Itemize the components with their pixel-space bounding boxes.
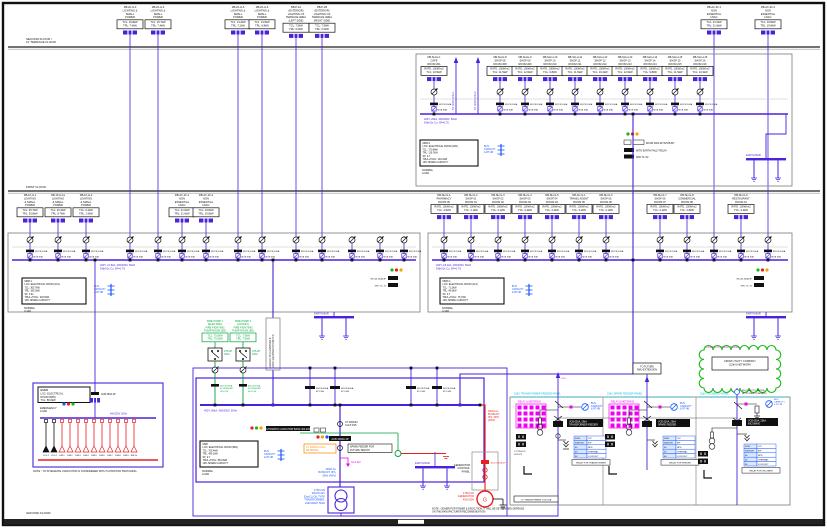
- svg-text:SHOP 15: SHOP 15: [670, 58, 681, 62]
- svg-text:MCB 63A: MCB 63A: [703, 108, 713, 111]
- svg-text:ROOM 05: ROOM 05: [573, 200, 585, 204]
- svg-text:RATE: 100W/m2: RATE: 100W/m2: [569, 205, 589, 209]
- svg-text:& SMALL: & SMALL: [25, 200, 37, 204]
- msb-upfeeder: MCCB 250A4P LSIG: [432, 367, 456, 407]
- mdb1-info-box: MDB-1LOC: ELECTRICAL ROOM (101)TCL: 305.…: [22, 278, 86, 313]
- msb-upfeeder: MCCB 400A4P LSIG: [305, 367, 329, 407]
- bus-note-1fl: 400Y, 21.5kA, 400/230V, 50Hz63kA/1s Cu, …: [100, 263, 136, 270]
- svg-text:DB-SH-H-9: DB-SH-H-9: [518, 55, 532, 59]
- svg-text:MCCB 100A: MCCB 100A: [243, 250, 256, 253]
- mdb2-info-box: MDB-2LOC: ELECTRICAL ROOM (206)TCL: 170.…: [420, 140, 478, 175]
- circuit-tap: DB-SH-G-7SHOP 06ROOM 07RATE: 100W/m2TCL:…: [647, 193, 678, 261]
- svg-text:MCB 63A: MCB 63A: [553, 108, 563, 111]
- svg-text:TCL: 3.4kW: TCL: 3.4kW: [734, 208, 748, 212]
- svg-text:THERMAL: THERMAL: [588, 450, 599, 453]
- svg-text:DB-1F-H-1a: DB-1F-H-1a: [51, 193, 66, 197]
- svg-text:MCB 63A: MCB 63A: [653, 108, 663, 111]
- earth-bar-1fr: [746, 316, 786, 339]
- svg-text:TCL: 11.5kW: TCL: 11.5kW: [493, 70, 508, 74]
- svg-text:400Y, 65kA, 400/230V, 50Hz: 400Y, 65kA, 400/230V, 50Hz: [204, 409, 238, 413]
- svg-text:SHOP 09: SHOP 09: [520, 58, 531, 62]
- circuit-tap: MCCB 100AMCB 63A: [376, 236, 398, 261]
- svg-text:DB-SH-H-1: DB-SH-H-1: [427, 55, 441, 59]
- circuit-tap: DB-SH-H-1CAFEROOM 201RATE: 100W/m2TCL: 1…: [421, 55, 452, 115]
- svg-text:TCL: 7.5kW: TCL: 7.5kW: [315, 23, 329, 27]
- svg-text:TRL: 7.4kW: TRL: 7.4kW: [123, 23, 137, 27]
- bus-capacity-glyph-msb: BUSCAPACITY& RT-4B: [264, 449, 285, 461]
- svg-text:TCL: 19.8kW: TCL: 19.8kW: [198, 208, 214, 212]
- svg-text:RATE: 100W/m2: RATE: 100W/m2: [461, 205, 481, 209]
- svg-text:NPS: NPS: [758, 455, 763, 457]
- svg-text:MCCB 100A: MCCB 100A: [211, 250, 224, 253]
- svg-text:RELAY & METERING: RELAY & METERING: [611, 401, 634, 404]
- svg-text:RELAY FOR FEEDER: RELAY FOR FEEDER: [669, 461, 691, 464]
- circuit-tap: DB-SH-G-2SHOP 01ROOM 01RATE: 100W/m2TCL:…: [458, 193, 489, 261]
- roof-riser-2: TO ROOF AHU-2: [474, 57, 480, 114]
- svg-text:MCB 63A: MCB 63A: [325, 255, 335, 258]
- svg-text:RESTAURANT: RESTAURANT: [732, 196, 750, 200]
- svg-text:RATE: 100W/m2: RATE: 100W/m2: [677, 205, 697, 209]
- circuit-tap: MCCB 100AMCB 63A: [258, 226, 280, 261]
- circuit-tap: MCCB 100AMCB 63A: [126, 226, 148, 261]
- svg-text:LIGHTING: LIGHTING: [80, 196, 92, 200]
- svg-text:4P W/SHUNT: 4P W/SHUNT: [248, 388, 262, 390]
- svg-text:MCCB 100A: MCCB 100A: [135, 250, 148, 253]
- svg-text:SPD T1+T2: SPD T1+T2: [636, 156, 649, 159]
- svg-text:TCL: 13.4kW: TCL: 13.4kW: [692, 70, 708, 74]
- msb-info-box: MSBLOC: ELECTRICAL ROOM (B01)TCL: 705.4k…: [200, 441, 258, 476]
- svg-text:BUSCAPACITY& RT-4B: BUSCAPACITY& RT-4B: [94, 285, 106, 294]
- mv-cubicle-spare-feeder: RELAY & METERING TO FUTURERMU EXTENSION …: [605, 363, 699, 474]
- svg-text:ROOM 08: ROOM 08: [681, 200, 693, 204]
- svg-text:EM-2: EM-2: [67, 455, 73, 457]
- svg-text:50/51: 50/51: [745, 446, 751, 448]
- svg-text:DB-AC-2F-2: DB-AC-2F-2: [761, 5, 776, 9]
- circuit-tap: MCCB 100AMCB 63A: [764, 226, 786, 261]
- svg-text:DB-SH-H-12: DB-SH-H-12: [593, 55, 608, 59]
- circuit-tap: DB-SH-H-8SHOP 08ROOM 208RATE: 100W/m2TCL…: [487, 55, 518, 115]
- emdb-info-box: EMDBLOC: ELECTRICALROOM (B05)TCL: 86.6kW…: [38, 387, 90, 413]
- svg-text:MCCB 100A: MCCB 100A: [385, 250, 398, 253]
- svg-text:DB-AC-G-1: DB-AC-G-1: [572, 193, 586, 197]
- circuit-tap: DB-SH-G-9RESTAURANTROOM 10RATE: 100W/m2T…: [728, 193, 759, 261]
- earth-bar-msb: [415, 466, 455, 489]
- svg-text:MCB 63A: MCB 63A: [744, 255, 754, 258]
- svg-text:22kV: 22kV: [561, 378, 567, 380]
- svg-text:RATE: 100W/m2: RATE: 100W/m2: [434, 205, 454, 209]
- fire-pump-circuit: FIRE PUMP 2(JOCKEY)FIRE FIGHTINGPUMP ROO…: [230, 319, 262, 406]
- svg-text:ROOM 06: ROOM 06: [600, 200, 612, 204]
- svg-text:EARTH BAR: EARTH BAR: [314, 312, 329, 316]
- svg-text:LOCKOUT: LOCKOUT: [758, 464, 769, 466]
- emergency-distribution-board: EMDBLOC: ELECTRICALROOM (B05)TCL: 86.6kW…: [33, 383, 163, 473]
- svg-text:TRL: 7.1kW: TRL: 7.1kW: [231, 23, 245, 27]
- svg-text:TRL: 75.0kW: TRL: 75.0kW: [207, 337, 223, 341]
- svg-text:EM-10: EM-10: [131, 455, 138, 457]
- emergency-branch: EM-4: [83, 420, 89, 457]
- svg-text:LIGHTING &: LIGHTING &: [151, 8, 166, 12]
- svg-text:100A: 100A: [252, 353, 258, 356]
- svg-text:RATE: 100W/m2: RATE: 100W/m2: [542, 205, 562, 209]
- svg-text:POWER: POWER: [53, 203, 63, 207]
- svg-text:SHOP 14: SHOP 14: [645, 58, 656, 62]
- svg-text:MCCB 100A: MCCB 100A: [580, 103, 593, 106]
- svg-text:BUSCAPACITY& RT-4B: BUSCAPACITY& RT-4B: [680, 402, 692, 411]
- svg-text:MCB 63A: MCB 63A: [501, 255, 511, 258]
- svg-text:ROOM 02: ROOM 02: [492, 200, 504, 204]
- svg-text:MCCB 100A: MCCB 100A: [773, 250, 786, 253]
- svg-text:ROOM 210: ROOM 210: [543, 62, 557, 66]
- svg-text:O/C: O/C: [758, 446, 762, 448]
- svg-text:MCCB 100A: MCCB 100A: [301, 250, 314, 253]
- circuit-tap: MCCB 100AMCB 63A: [400, 236, 422, 261]
- svg-text:MCCB 100A: MCCB 100A: [692, 250, 705, 253]
- svg-text:SMALL: SMALL: [234, 12, 243, 16]
- svg-text:MCCB 100A: MCCB 100A: [655, 103, 668, 106]
- svg-text:LIGHTING &: LIGHTING &: [255, 8, 270, 12]
- svg-text:TRL: 6.0kW: TRL: 6.0kW: [289, 27, 303, 31]
- svg-text:DB-P-1A: DB-P-1A: [291, 5, 302, 9]
- svg-text:TCL: 12.6kW: TCL: 12.6kW: [517, 70, 533, 74]
- svg-text:TO TRANSFORMER 1750 kVA: TO TRANSFORMER 1750 kVA: [521, 498, 552, 501]
- svg-text:EM-3: EM-3: [75, 455, 81, 457]
- svg-text:DB-SH-H-16: DB-SH-H-16: [693, 55, 708, 59]
- svg-text:TRL: 7.5kW: TRL: 7.5kW: [236, 337, 250, 341]
- svg-text:MCCB 100A: MCCB 100A: [327, 250, 340, 253]
- svg-text:EARTH BAR: EARTH BAR: [746, 153, 761, 157]
- svg-text:MCCB 250A: MCCB 250A: [417, 387, 430, 390]
- svg-text:ESSENTIAL: ESSENTIAL: [761, 12, 776, 16]
- svg-text:TRAVEL AGENT: TRAVEL AGENT: [569, 196, 589, 200]
- svg-text:(EXTERIOR): (EXTERIOR): [289, 8, 304, 12]
- svg-text:(LEFT SIDE): (LEFT SIDE): [289, 19, 304, 23]
- svg-text:DB-2F-H-4: DB-2F-H-4: [152, 5, 165, 9]
- svg-text:EM-7: EM-7: [107, 455, 113, 457]
- circuit-tap: DB-SH-H-16SHOP 16ROOM 216RATE: 100W/m2TC…: [687, 55, 718, 115]
- svg-text:(RIGHT SIDE): (RIGHT SIDE): [314, 19, 331, 23]
- svg-text:MCCB 100A: MCCB 100A: [187, 250, 200, 253]
- emergency-branch: EM-5: [91, 420, 97, 457]
- svg-text:TCL: 7.5kW: TCL: 7.5kW: [289, 23, 303, 27]
- svg-text:MCCB 100A: MCCB 100A: [611, 250, 624, 253]
- svg-text:TCL: 2.4kW: TCL: 2.4kW: [518, 208, 532, 212]
- svg-text:MCB 63A: MCB 63A: [209, 255, 219, 258]
- svg-text:EARTH BAR: EARTH BAR: [746, 312, 761, 316]
- svg-text:TCL: 15.7kW: TCL: 15.7kW: [150, 20, 166, 24]
- svg-text:MCCB 100A: MCCB 100A: [630, 103, 643, 106]
- svg-text:EM-9: EM-9: [123, 455, 129, 457]
- second-floor-panel: 400Y, 26kA, 400/230V, 50Hz63kA/1s Cu, SF…: [416, 54, 792, 186]
- svg-text:DB-AC-2F-1: DB-AC-2F-1: [707, 5, 722, 9]
- first-floor-left-panel: 400Y, 21.5kA, 400/230V, 50Hz63kA/1s Cu, …: [8, 193, 422, 339]
- svg-text:22kV SPARE FEEDER PANEL: 22kV SPARE FEEDER PANEL: [607, 392, 643, 396]
- svg-text:THERMAL: THERMAL: [758, 458, 769, 461]
- svg-text:MCB 63A: MCB 63A: [133, 255, 143, 258]
- svg-text:EM-8: EM-8: [115, 455, 121, 457]
- svg-text:& SMALL: & SMALL: [53, 200, 65, 204]
- svg-text:MCCB 250A: MCCB 250A: [443, 387, 456, 390]
- svg-text:LIGHTING: LIGHTING: [52, 196, 64, 200]
- floor-label-second: SECOND FLOOR /1F TERRACE FLOOR: [26, 37, 57, 44]
- svg-text:POWER: POWER: [233, 15, 243, 19]
- svg-text:DB-SH-G-2: DB-SH-G-2: [464, 193, 478, 197]
- circuit-tap: DB-1F-H-2LIGHTING& SMALLPOWERTCL: 6.2kWT…: [73, 193, 104, 261]
- svg-text:RATE: 100W/m2: RATE: 100W/m2: [424, 67, 444, 71]
- svg-text:COMMERCIAL: COMMERCIAL: [678, 196, 696, 200]
- generator-section: GENERATORCONTROLPANEL ACB 2500A 4P G 175…: [432, 452, 525, 514]
- svg-text:TRL: 6.0kW: TRL: 6.0kW: [315, 27, 329, 31]
- transformer-label: 1750 kVA22kV/0.4kV(Dyn11) OIL TYPETRANSF…: [304, 488, 326, 505]
- svg-text:LOCKOUT: LOCKOUT: [588, 456, 599, 458]
- svg-text:LOCKOUT: LOCKOUT: [677, 456, 688, 458]
- svg-text:ESSENTIAL: ESSENTIAL: [175, 200, 190, 204]
- panel-1fl-accessories: MCCB 400A 4P SPD T1+T2: [371, 268, 403, 287]
- svg-text:EM-5: EM-5: [91, 455, 97, 457]
- svg-text:DB-SH-H-10: DB-SH-H-10: [543, 55, 558, 59]
- svg-text:MCB 63A: MCB 63A: [528, 108, 538, 111]
- svg-text:EM-6: EM-6: [99, 455, 105, 457]
- svg-text:DB-SH-G-6: DB-SH-G-6: [599, 193, 613, 197]
- svg-text:MCB 63A: MCB 63A: [690, 255, 700, 258]
- svg-text:SF-0.3S: SF-0.3S: [248, 391, 257, 393]
- svg-text:TCL: 21.6kW: TCL: 21.6kW: [174, 208, 190, 212]
- fire-pump-circuit: FIRE PUMP 1(ELECTRIC)FIRE FIGHTINGPUMP R…: [202, 319, 234, 406]
- svg-text:DB-AC-1F-2: DB-AC-1F-2: [199, 193, 214, 197]
- svg-text:MCCB 100A: MCCB 100A: [719, 250, 732, 253]
- svg-text:NPS: NPS: [588, 447, 593, 449]
- circuit-tap: MCCB 100AMCB 63A: [318, 226, 340, 261]
- svg-text:DB-SH-G-9: DB-SH-G-9: [734, 193, 748, 197]
- svg-text:PUMP ROOM (B2): PUMP ROOM (B2): [204, 329, 226, 333]
- svg-text:O/C: O/C: [588, 438, 592, 440]
- svg-text:PHARMACY: PHARMACY: [437, 196, 452, 200]
- svg-text:TCL: 11.5kW: TCL: 11.5kW: [568, 70, 583, 74]
- svg-text:RATE: 100W/m2: RATE: 100W/m2: [650, 205, 670, 209]
- svg-text:ROOM 201: ROOM 201: [427, 62, 441, 66]
- svg-text:O/C: O/C: [677, 438, 681, 440]
- svg-text:DB-P-1B: DB-P-1B: [317, 5, 328, 9]
- svg-text:BUSCAPACITY& RT-4B: BUSCAPACITY& RT-4B: [774, 399, 785, 406]
- svg-text:BUSCAPACITY& RT-4B: BUSCAPACITY& RT-4B: [591, 402, 603, 411]
- svg-text:TCL: 13.6kW: TCL: 13.6kW: [254, 20, 270, 24]
- svg-text:SF-0.3S: SF-0.3S: [220, 391, 229, 393]
- svg-text:MCCB 100A: MCCB 100A: [665, 250, 678, 253]
- svg-text:MCB 63A: MCB 63A: [299, 255, 309, 258]
- svg-text:VT 22kV/√3110V/√3: VT 22kV/√3110V/√3: [514, 450, 526, 456]
- svg-text:MCCB 200A: MCCB 200A: [248, 384, 261, 387]
- emergency-branch: EM-9: [123, 420, 129, 457]
- svg-text:SHOP 03: SHOP 03: [520, 196, 531, 200]
- svg-text:MCCB 400A 4P: MCCB 400A 4P: [371, 278, 387, 281]
- bus-capacity-glyph-1fl: BUSCAPACITY& RT-4B: [94, 284, 115, 296]
- svg-text:EM-1: EM-1: [59, 455, 65, 457]
- svg-text:BUSCAPACITY& RT-4B: BUSCAPACITY& RT-4B: [264, 450, 276, 459]
- svg-text:DB-SH-H-13: DB-SH-H-13: [618, 55, 633, 59]
- svg-text:TCL: 26.3kW: TCL: 26.3kW: [50, 208, 66, 212]
- mv-cubicle-incoming: POWER COMPANY SCOPE FROM UTILITY COMPANY…: [698, 345, 785, 505]
- first-floor-right-panel: 400Y, 18.1kA, 400/230V, 50Hz63kA/1s Cu, …: [428, 193, 792, 339]
- svg-text:TCL: 21.6kW: TCL: 21.6kW: [706, 20, 722, 24]
- svg-text:TRL: 21.6kW: TRL: 21.6kW: [706, 23, 722, 27]
- svg-text:HVAC: HVAC: [178, 203, 185, 207]
- svg-text:SA 0.4kV: SA 0.4kV: [351, 461, 361, 464]
- svg-text:ACB 2500A 4P: ACB 2500A 4P: [491, 462, 506, 465]
- circuit-tap: DB-SH-H-14SHOP 14ROOM 214RATE: 100W/m2TC…: [637, 55, 668, 115]
- main-switchboard: 400Y, 65kA, 400/230V, 50Hz MCCB 400A4P L…: [196, 319, 500, 487]
- svg-text:SHOP 04: SHOP 04: [547, 196, 558, 200]
- svg-text:22kV TRANSFORMER FEEDER PANEL: 22kV TRANSFORMER FEEDER PANEL: [514, 392, 561, 396]
- svg-text:MCB 63A: MCB 63A: [609, 255, 619, 258]
- svg-text:NORMALLOAD: NORMALLOAD: [202, 469, 214, 476]
- emergency-branch: EM-2: [67, 420, 73, 457]
- svg-text:MCB 63A: MCB 63A: [717, 255, 727, 258]
- svg-text:MCCB 100A: MCCB 100A: [530, 250, 543, 253]
- svg-text:DB-2F-H-3: DB-2F-H-3: [124, 5, 137, 9]
- svg-text:RATE: 100W/m2: RATE: 100W/m2: [596, 205, 616, 209]
- circuit-tap: DB-SH-H-13SHOP 13ROOM 213RATE: 100W/m2TC…: [612, 55, 643, 115]
- svg-text:ACB 250A 4P: ACB 250A 4P: [101, 393, 116, 396]
- svg-text:LTG-2: LTG-2: [51, 455, 58, 457]
- svg-text:WITH EARTH FAULT RELAY: WITH EARTH FAULT RELAY: [636, 150, 667, 153]
- svg-text:NPS: NPS: [677, 447, 682, 449]
- svg-text:MCB 63A: MCB 63A: [447, 255, 457, 258]
- svg-text:AUTOMATIC CAPACITOR BANK 400 k: AUTOMATIC CAPACITOR BANK 400 kVAr: [265, 428, 311, 431]
- bus-capacity-glyph-1fr: BUSCAPACITY& RT-4B: [512, 284, 533, 296]
- svg-text:MCCB 100A: MCCB 100A: [409, 250, 422, 253]
- svg-text:SPD T1+T2: SPD T1+T2: [375, 286, 387, 288]
- svg-text:TCL: 6.2kW: TCL: 6.2kW: [79, 208, 93, 212]
- emergency-branch: EM-3: [75, 420, 81, 457]
- svg-text:TO ROOF AHU-2: TO ROOF AHU-2: [474, 91, 477, 110]
- svg-text:ESSENTIAL: ESSENTIAL: [199, 200, 214, 204]
- svg-text:TCL: 2.1kW: TCL: 2.1kW: [491, 208, 505, 212]
- svg-text:4P W/SHUNT: 4P W/SHUNT: [220, 388, 234, 390]
- svg-text:MCCB 100A: MCCB 100A: [357, 250, 370, 253]
- svg-text:BUSCAPACITY& RT-4B: BUSCAPACITY& RT-4B: [512, 285, 524, 294]
- drawing-sheet: SECOND FLOOR /1F TERRACE FLOOR FIRST FLO…: [0, 0, 827, 528]
- svg-text:CAFE: CAFE: [431, 58, 438, 62]
- svg-text:ROOM 03: ROOM 03: [519, 200, 531, 204]
- svg-text:MCB 63A: MCB 63A: [628, 108, 638, 111]
- svg-text:TCL: 2.4kW: TCL: 2.4kW: [545, 208, 559, 212]
- svg-text:SHOP 05: SHOP 05: [601, 196, 612, 200]
- svg-text:MCCB 100A: MCCB 100A: [267, 250, 280, 253]
- svg-text:HVAC: HVAC: [202, 203, 209, 207]
- emergency-branch: LTG-1: [43, 420, 50, 457]
- svg-text:MCCB 100A: MCCB 100A: [163, 250, 176, 253]
- svg-text:SHOP 02: SHOP 02: [493, 196, 504, 200]
- svg-text:3000A CuBUSDUCT, 3Ph,50Hz (400: 3000A CuBUSDUCT, 3Ph,50Hz (400V): [318, 468, 336, 477]
- svg-text:ROOM 215: ROOM 215: [668, 62, 682, 66]
- svg-text:MCCB 100A: MCCB 100A: [680, 103, 693, 106]
- svg-text:DB-SH-G-3: DB-SH-G-3: [491, 193, 505, 197]
- svg-text:& SMALL: & SMALL: [81, 200, 93, 204]
- circuit-tap: DB-1F-H-1aLIGHTING& SMALLPOWERTCL: 26.3k…: [45, 193, 76, 261]
- svg-text:LIGHTING &: LIGHTING &: [231, 8, 246, 12]
- svg-text:RATE: 100W/m2: RATE: 100W/m2: [515, 205, 535, 209]
- svg-text:ROOM 212: ROOM 212: [593, 62, 607, 66]
- single-line-diagram: SECOND FLOOR /1F TERRACE FLOOR FIRST FLO…: [0, 0, 827, 528]
- svg-text:MCB 63A: MCB 63A: [265, 255, 275, 258]
- svg-text:4P LSIG: 4P LSIG: [443, 391, 452, 393]
- svg-text:MCB 63A: MCB 63A: [771, 255, 781, 258]
- svg-text:LIGHTING OF: LIGHTING OF: [288, 12, 305, 16]
- svg-text:POWER: POWER: [25, 203, 35, 207]
- svg-text:HVAC: HVAC: [710, 15, 717, 19]
- svg-text:MCCB 100A: MCCB 100A: [505, 103, 518, 106]
- svg-text:RATE: 100W/m2: RATE: 100W/m2: [640, 67, 660, 71]
- svg-text:SHOP 10: SHOP 10: [545, 58, 556, 62]
- svg-text:TCL: 35.7kW: TCL: 35.7kW: [22, 208, 38, 212]
- svg-text:MCCB 100A: MCCB 100A: [746, 250, 759, 253]
- svg-text:NON: NON: [711, 8, 717, 12]
- svg-text:MCCB 100A: MCCB 100A: [557, 250, 570, 253]
- bus-note-1fr: 400Y, 18.1kA, 400/230V, 50Hz63kA/1s Cu, …: [436, 263, 472, 270]
- circuit-tap: DB-AC-G-1TRAVEL AGENTROOM 05RATE: 100W/m…: [566, 193, 597, 261]
- svg-text:SHOP 12: SHOP 12: [595, 58, 606, 62]
- svg-text:DB-SH-H-8: DB-SH-H-8: [493, 55, 507, 59]
- svg-text:TCL: 2.8kW: TCL: 2.8kW: [680, 208, 694, 212]
- earth-bar-1fl: [314, 316, 354, 339]
- svg-text:TERRACE AREA: TERRACE AREA: [312, 15, 332, 19]
- svg-text:DB-1F-H-1: DB-1F-H-1: [24, 193, 37, 197]
- panel-2f-accessories: MCCB 400A 4P W/SHUNT WITH EARTH FAULT RE…: [624, 132, 675, 159]
- svg-text:4P LSIG: 4P LSIG: [341, 391, 350, 393]
- svg-text:50N/51N: 50N/51N: [745, 451, 754, 453]
- svg-text:TO ROOF AHU-1: TO ROOF AHU-1: [452, 91, 455, 110]
- title-strip-tab: [398, 520, 424, 524]
- svg-text:RELAY FOR INCOMER: RELAY FOR INCOMER: [749, 469, 773, 472]
- svg-text:LIGHTING OF: LIGHTING OF: [314, 12, 331, 16]
- svg-text:MCB 63A: MCB 63A: [528, 255, 538, 258]
- svg-text:TCL: 2.1kW: TCL: 2.1kW: [464, 208, 478, 212]
- svg-text:MCB 63A: MCB 63A: [678, 108, 688, 111]
- svg-text:MCB 63A: MCB 63A: [61, 255, 71, 258]
- svg-text:MCCB 400A 4P: MCCB 400A 4P: [737, 278, 753, 281]
- emergency-branch: EM-6: [99, 420, 105, 457]
- emergency-branch: LTG-2: [51, 420, 58, 457]
- svg-text:TRL: 19.8kW: TRL: 19.8kW: [760, 23, 776, 27]
- svg-text:TRL: 30.8kW: TRL: 30.8kW: [22, 211, 38, 215]
- svg-text:ROOM 04: ROOM 04: [546, 200, 558, 204]
- floor-label-first: FIRST FLOOR: [26, 185, 47, 189]
- circuit-tap: DB-SH-G-8COMMERCIALROOM 08RATE: 100W/m2T…: [674, 193, 705, 261]
- svg-text:LIGHTING &: LIGHTING &: [123, 8, 138, 12]
- svg-text:POWER: POWER: [257, 15, 267, 19]
- circuit-tap: DB-1F-H-1LIGHTING& SMALLPOWERTCL: 35.7kW…: [17, 193, 48, 261]
- svg-text:NON: NON: [765, 8, 771, 12]
- circuit-tap: DB-SH-G-5SHOP 04ROOM 04RATE: 100W/m2TCL:…: [539, 193, 570, 261]
- svg-text:BUSCAPACITY& RT-4B: BUSCAPACITY& RT-4B: [484, 145, 496, 154]
- shaft-riser-label: FEEDER TO ELEVATORS &ROOF EQUIPMENT (SHA…: [266, 318, 280, 370]
- svg-text:MCB 63A: MCB 63A: [383, 255, 393, 258]
- svg-text:TCL: 16.8kW: TCL: 16.8kW: [122, 20, 138, 24]
- svg-text:DB-SH-H-14: DB-SH-H-14: [643, 55, 658, 59]
- svg-text:POWER: POWER: [81, 203, 91, 207]
- svg-text:100A: 100A: [224, 353, 230, 356]
- svg-text:SHOP 16: SHOP 16: [695, 58, 706, 62]
- svg-text:CT 2000/5ACL0.5 FS5: CT 2000/5ACL0.5 FS5: [345, 421, 358, 427]
- svg-text:NOTE : TO INTEGRATE CAPACITOR: NOTE : TO INTEGRATE CAPACITOR IS CONSIDE…: [33, 469, 138, 473]
- svg-text:TCL: 2.1kW: TCL: 2.1kW: [599, 208, 613, 212]
- svg-text:TCL: 11.5kW: TCL: 11.5kW: [668, 70, 683, 74]
- svg-text:DB-SH-G-7: DB-SH-G-7: [653, 193, 667, 197]
- svg-text:DB-AC-1F-1: DB-AC-1F-1: [175, 193, 190, 197]
- svg-text:MCCB 100A: MCCB 100A: [584, 250, 597, 253]
- svg-text:MCB 63A: MCB 63A: [582, 255, 592, 258]
- svg-text:TCL: 12.6kW: TCL: 12.6kW: [617, 70, 633, 74]
- svg-text:RATE: 100W/m2: RATE: 100W/m2: [540, 67, 560, 71]
